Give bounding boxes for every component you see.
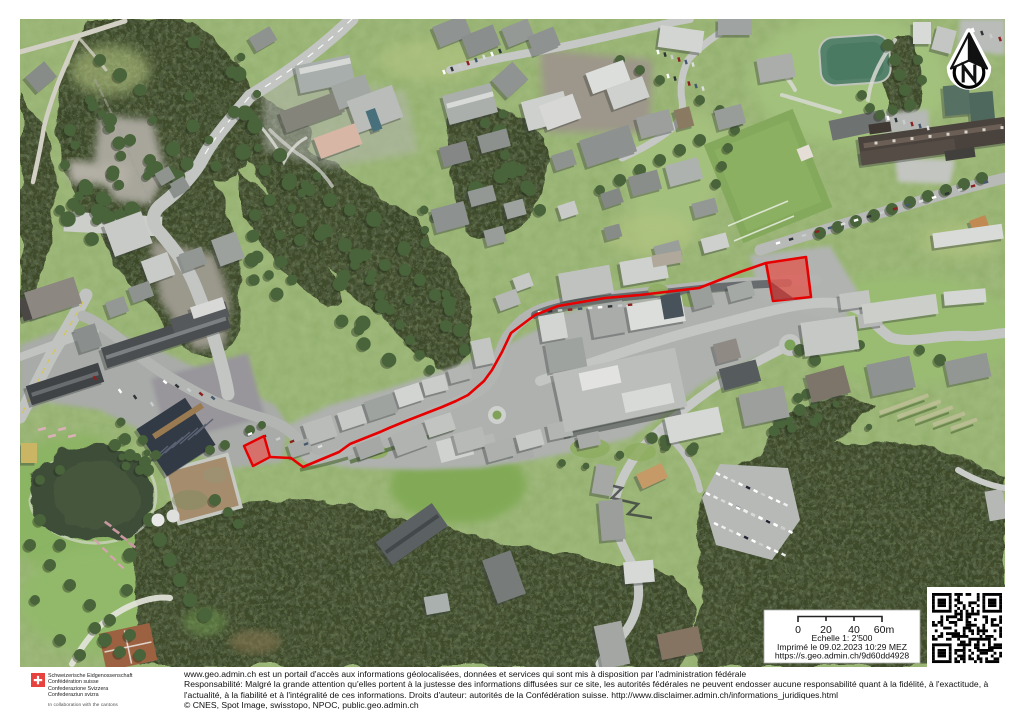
svg-text:60m: 60m [874,624,895,636]
svg-text:0: 0 [795,624,801,636]
svg-text:https://s.geo.admin.ch/9d60dd4: https://s.geo.admin.ch/9d60dd4928 [775,650,909,660]
